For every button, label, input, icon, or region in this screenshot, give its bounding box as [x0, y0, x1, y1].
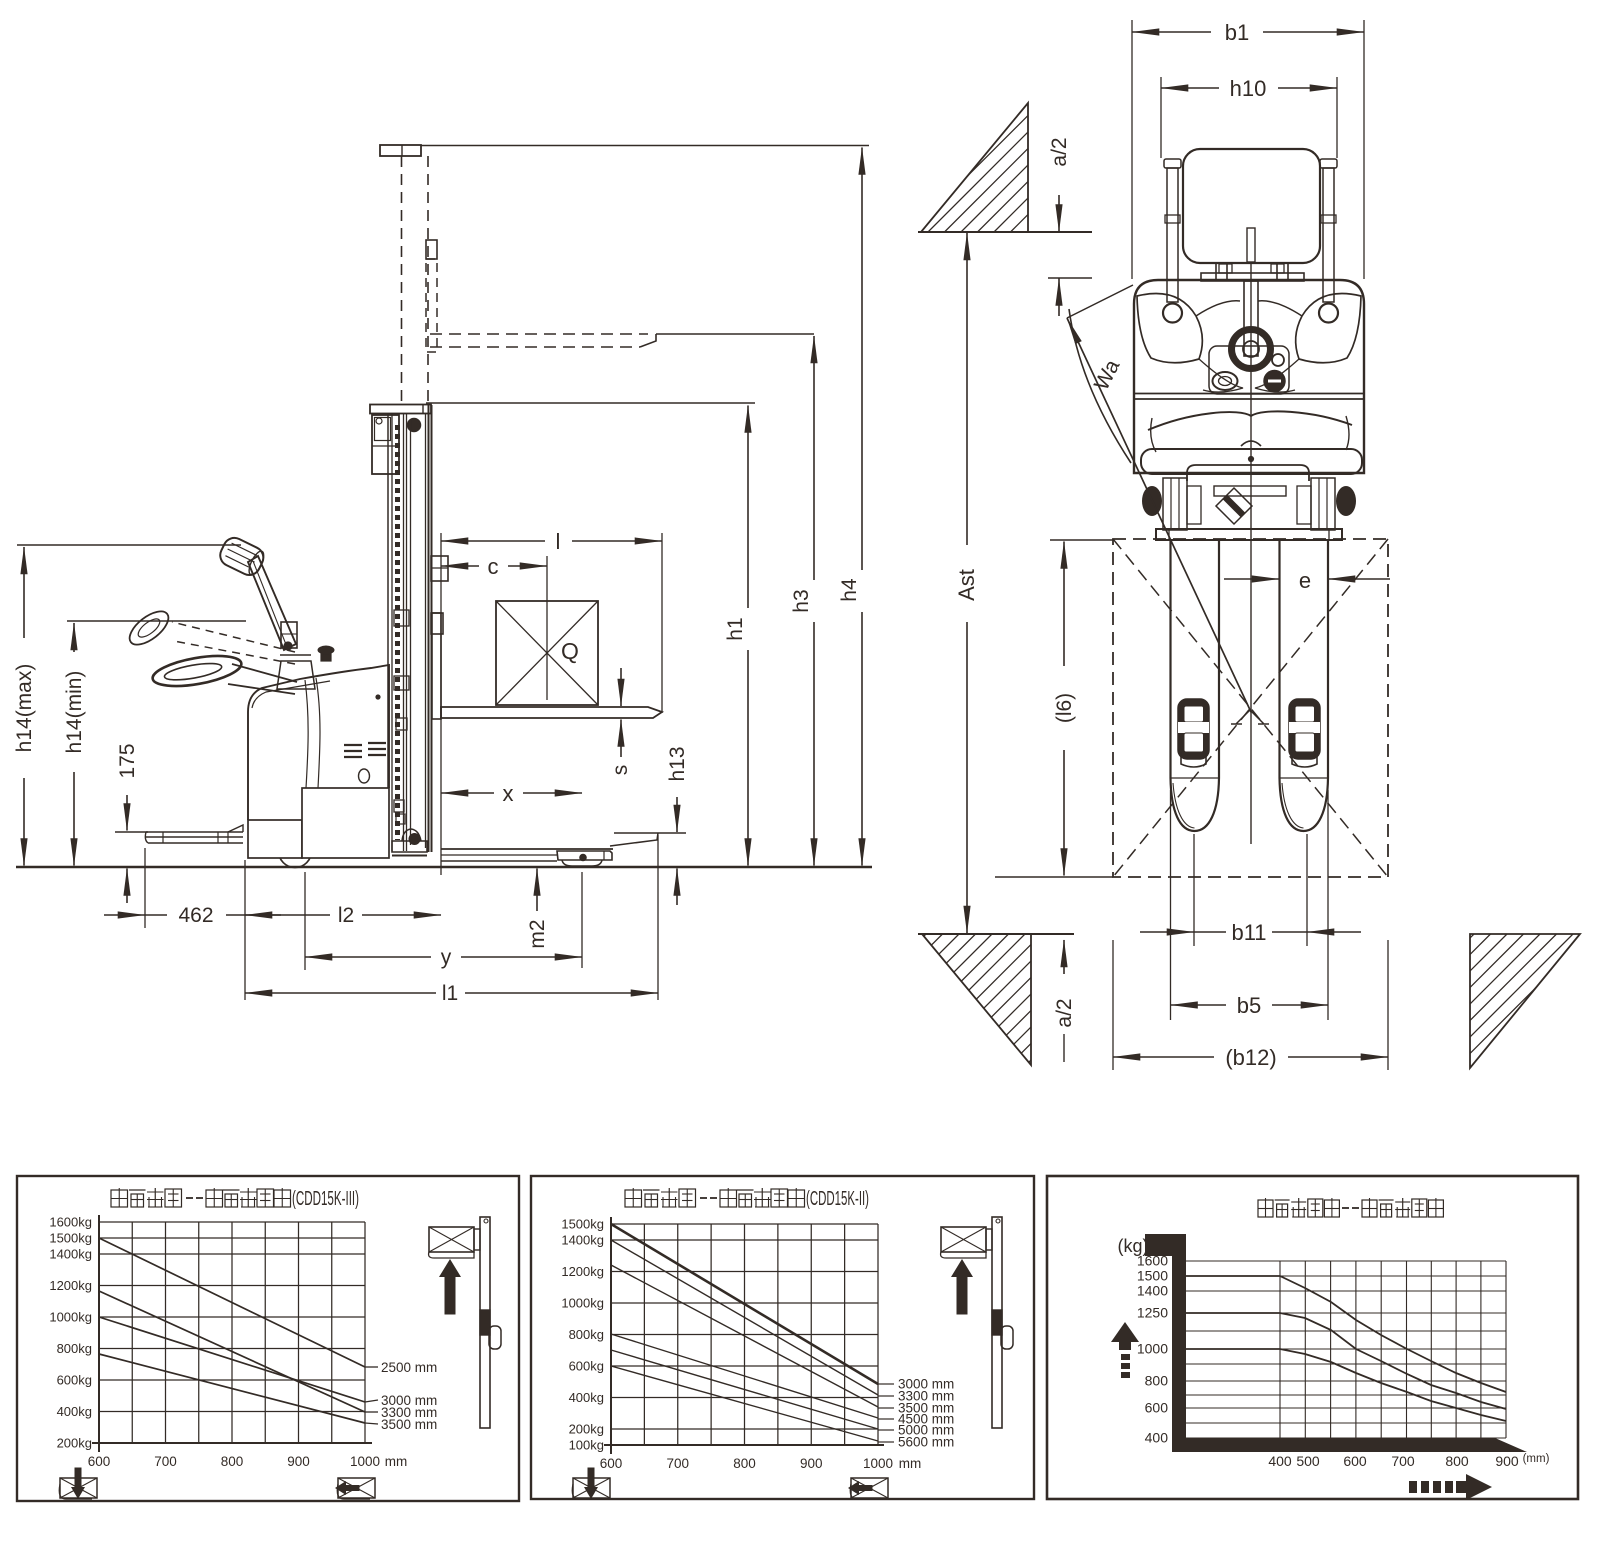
svg-text:Q: Q — [561, 638, 579, 664]
svg-text:1000: 1000 — [350, 1454, 380, 1469]
svg-text:800: 800 — [733, 1456, 756, 1471]
svg-text:1200kg: 1200kg — [561, 1264, 604, 1279]
svg-text:600: 600 — [1145, 1400, 1169, 1416]
svg-text:1000: 1000 — [863, 1456, 893, 1471]
svg-text:e: e — [1299, 568, 1311, 593]
svg-text:h10: h10 — [1230, 76, 1267, 101]
svg-text:l: l — [556, 529, 561, 554]
svg-text:175: 175 — [116, 743, 139, 778]
svg-text:400: 400 — [1268, 1453, 1292, 1469]
svg-text:700: 700 — [1391, 1453, 1415, 1469]
svg-text:800: 800 — [1145, 1373, 1169, 1389]
svg-text:1200kg: 1200kg — [49, 1278, 92, 1293]
svg-text:l1: l1 — [442, 982, 458, 1005]
svg-text:(CDD15K-II): (CDD15K-II) — [806, 1188, 869, 1210]
svg-text:5600 mm: 5600 mm — [898, 1435, 954, 1450]
svg-text:1600kg: 1600kg — [49, 1215, 92, 1230]
svg-text:400: 400 — [1145, 1430, 1169, 1446]
svg-text:b11: b11 — [1231, 920, 1266, 945]
svg-text:200kg: 200kg — [57, 1436, 92, 1451]
svg-text:1400: 1400 — [1137, 1283, 1168, 1299]
svg-text:800kg: 800kg — [57, 1341, 92, 1356]
svg-text:l2: l2 — [338, 904, 354, 927]
svg-text:Ast: Ast — [954, 569, 979, 601]
svg-text:b5: b5 — [1237, 993, 1261, 1018]
svg-text:mm: mm — [385, 1454, 408, 1469]
svg-text:1250: 1250 — [1137, 1305, 1168, 1321]
svg-text:m2: m2 — [526, 919, 549, 948]
svg-text:700: 700 — [666, 1456, 689, 1471]
svg-text:500: 500 — [1296, 1453, 1320, 1469]
svg-text:400kg: 400kg — [57, 1404, 92, 1419]
svg-text:900: 900 — [800, 1456, 823, 1471]
svg-text:600kg: 600kg — [57, 1373, 92, 1388]
svg-text:1600: 1600 — [1137, 1253, 1168, 1269]
svg-text:400kg: 400kg — [569, 1390, 604, 1405]
svg-text:900: 900 — [1495, 1453, 1519, 1469]
svg-text:462: 462 — [178, 904, 213, 927]
svg-text:600: 600 — [88, 1454, 111, 1469]
svg-text:s: s — [609, 765, 632, 776]
svg-text:200kg: 200kg — [569, 1422, 604, 1437]
svg-text:1400kg: 1400kg — [561, 1233, 604, 1248]
svg-text:h4: h4 — [838, 578, 861, 602]
svg-text:800: 800 — [221, 1454, 244, 1469]
svg-text:(l6): (l6) — [1053, 693, 1076, 723]
svg-text:h1: h1 — [724, 617, 747, 640]
svg-text:a/2: a/2 — [1048, 137, 1071, 166]
svg-text:100kg: 100kg — [569, 1438, 604, 1453]
svg-text:1500kg: 1500kg — [49, 1231, 92, 1246]
svg-text:h3: h3 — [790, 589, 813, 612]
svg-text:3500 mm: 3500 mm — [381, 1417, 437, 1432]
svg-text:1000kg: 1000kg — [49, 1310, 92, 1325]
svg-text:1000: 1000 — [1137, 1341, 1168, 1357]
svg-text:b1: b1 — [1225, 20, 1249, 45]
svg-text:2500 mm: 2500 mm — [381, 1360, 437, 1375]
svg-text:h13: h13 — [666, 746, 689, 781]
svg-text:1500: 1500 — [1137, 1268, 1168, 1284]
svg-text:700: 700 — [154, 1454, 177, 1469]
svg-text:1000kg: 1000kg — [561, 1296, 604, 1311]
svg-text:a/2: a/2 — [1053, 998, 1076, 1027]
svg-text:x: x — [503, 781, 514, 806]
svg-text:(b12): (b12) — [1225, 1045, 1276, 1070]
svg-text:mm: mm — [899, 1456, 922, 1471]
svg-text:600: 600 — [600, 1456, 623, 1471]
svg-text:h14(max): h14(max) — [13, 664, 36, 753]
svg-text:h14(min): h14(min) — [63, 671, 86, 754]
svg-text:800: 800 — [1445, 1453, 1469, 1469]
svg-text:(mm): (mm) — [1523, 1453, 1550, 1465]
svg-text:y: y — [441, 946, 452, 969]
svg-text:1500kg: 1500kg — [561, 1217, 604, 1232]
svg-text:900: 900 — [287, 1454, 310, 1469]
svg-text:800kg: 800kg — [569, 1327, 604, 1342]
svg-text:(CDD15K-III): (CDD15K-III) — [292, 1188, 359, 1210]
svg-text:600: 600 — [1343, 1453, 1367, 1469]
svg-text:600kg: 600kg — [569, 1359, 604, 1374]
svg-text:c: c — [488, 554, 499, 579]
svg-text:1400kg: 1400kg — [49, 1247, 92, 1262]
